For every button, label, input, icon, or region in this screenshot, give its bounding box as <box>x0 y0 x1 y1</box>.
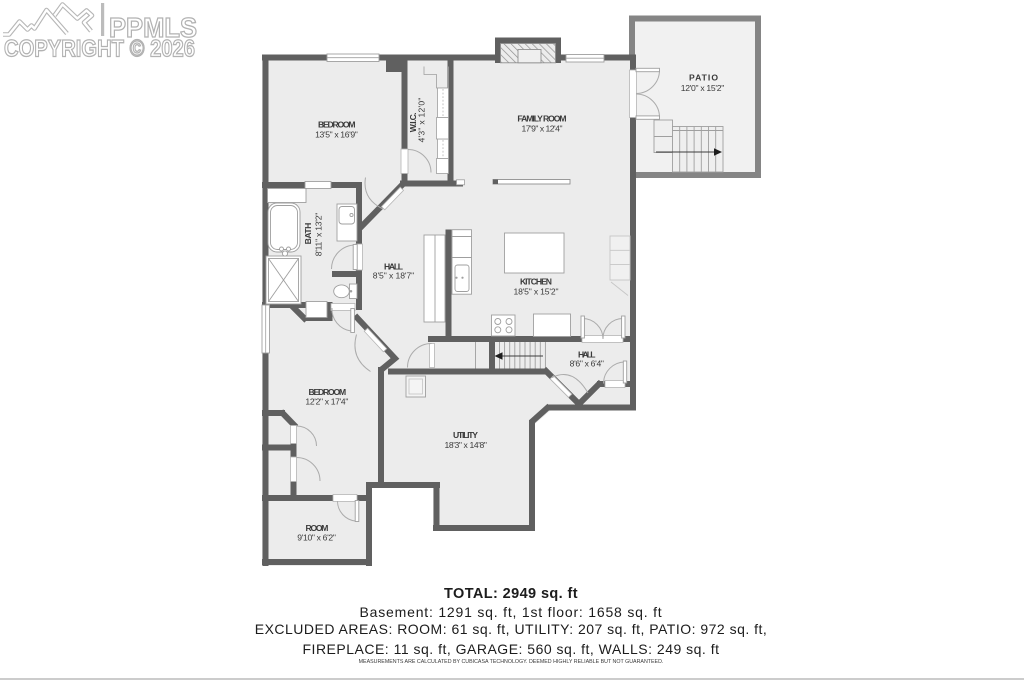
svg-text:18'5" x 15'2": 18'5" x 15'2" <box>514 286 559 296</box>
svg-text:PATIO: PATIO <box>689 73 718 83</box>
svg-text:13'5" x 16'9": 13'5" x 16'9" <box>315 130 358 140</box>
svg-text:8'6" x 6'4": 8'6" x 6'4" <box>570 359 604 369</box>
svg-text:18'3" x 14'8": 18'3" x 14'8" <box>444 440 487 450</box>
svg-text:BEDROOM: BEDROOM <box>308 387 346 397</box>
svg-text:12'2" x 17'4": 12'2" x 17'4" <box>305 397 348 407</box>
svg-text:UTILITY: UTILITY <box>453 430 478 440</box>
svg-text:FAMILY ROOM: FAMILY ROOM <box>517 113 566 123</box>
svg-text:12'0" x 15'2": 12'0" x 15'2" <box>681 83 725 93</box>
svg-text:KITCHEN: KITCHEN <box>520 277 552 287</box>
svg-text:8'11" x 13'2": 8'11" x 13'2" <box>314 213 324 257</box>
svg-text:BEDROOM: BEDROOM <box>318 119 356 129</box>
svg-text:COPYRIGHT © 2026: COPYRIGHT © 2026 <box>4 36 195 63</box>
svg-text:BATH: BATH <box>303 223 313 245</box>
svg-text:8'5" x 18'7": 8'5" x 18'7" <box>373 271 414 281</box>
svg-text:17'9" x 12'4": 17'9" x 12'4" <box>522 124 563 134</box>
svg-text:9'10" x 6'2": 9'10" x 6'2" <box>297 532 336 542</box>
svg-text:4'3" x 12'0": 4'3" x 12'0" <box>417 98 427 143</box>
